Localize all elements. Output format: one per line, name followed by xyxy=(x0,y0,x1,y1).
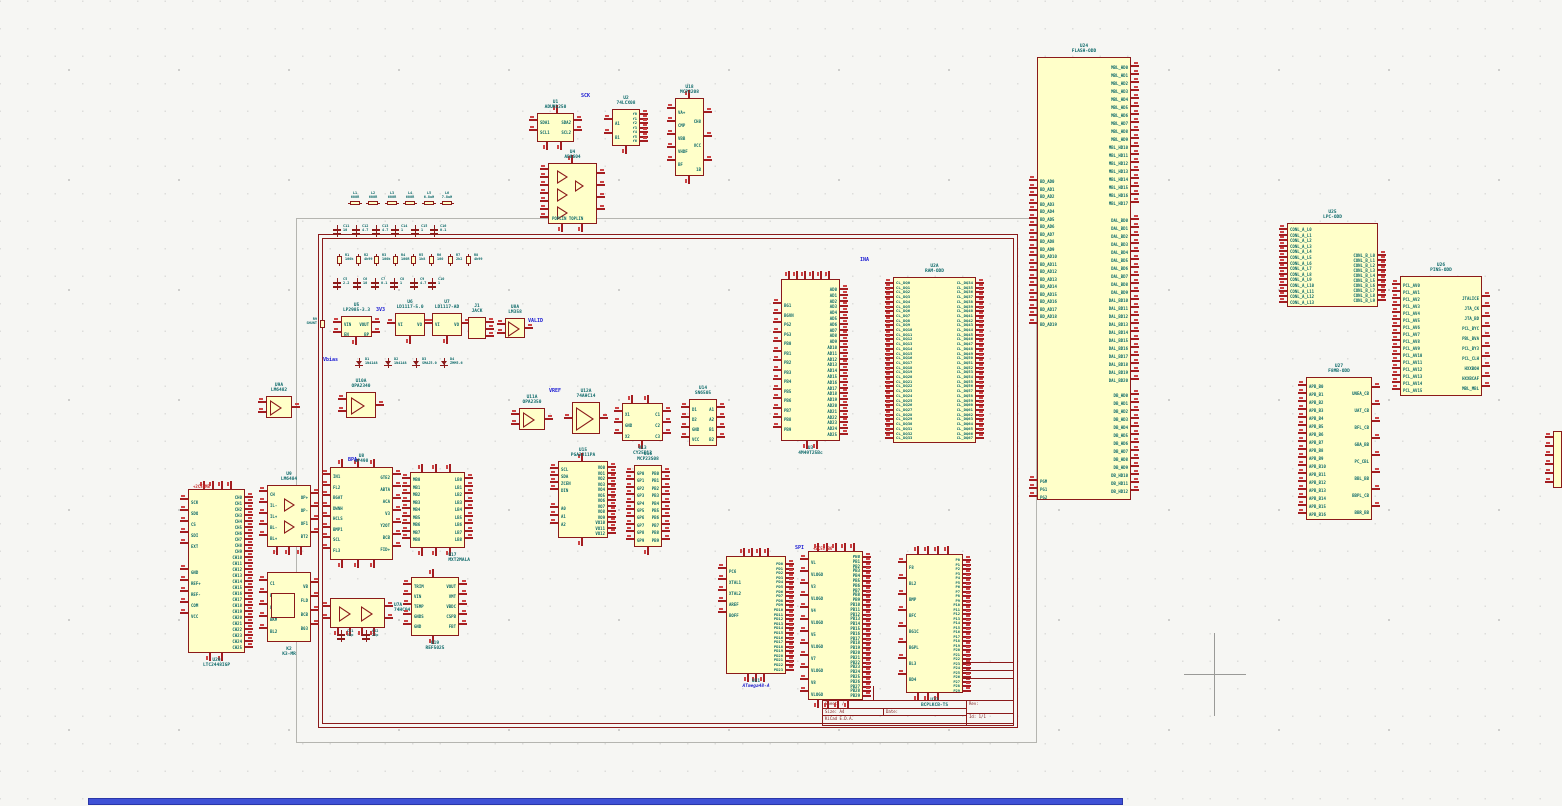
pin xyxy=(402,492,410,494)
pin xyxy=(560,142,562,150)
pin xyxy=(1392,304,1400,306)
discrete-L2[interactable]: L2 600R xyxy=(366,200,380,206)
pin xyxy=(259,512,267,514)
pin xyxy=(663,432,671,434)
discrete-R8[interactable]: R8 4k99 xyxy=(465,254,472,266)
pin xyxy=(1131,489,1139,491)
pin xyxy=(773,359,781,361)
pin xyxy=(681,406,689,408)
discrete-C7[interactable]: C7 0.1 xyxy=(371,278,379,290)
pin xyxy=(372,331,380,333)
component-U17[interactable]: MB0 MB1 MB2 MB3 MB4 MB5 MB6 MB7 MB8LB0 L… xyxy=(410,472,465,548)
pin xyxy=(820,271,822,279)
component-ref: U24FLASH-ODD xyxy=(1072,44,1096,54)
discrete-R6[interactable]: R6 100 xyxy=(428,254,435,266)
pin xyxy=(402,530,410,532)
pin xyxy=(1131,105,1139,107)
discrete-R7[interactable]: R7 2k2 xyxy=(447,254,454,266)
pin xyxy=(245,520,253,522)
pin xyxy=(403,593,411,595)
pin xyxy=(402,500,410,502)
pin xyxy=(1029,224,1037,226)
discrete-C14[interactable]: C14 1 xyxy=(391,225,399,237)
pin xyxy=(1029,232,1037,234)
pin xyxy=(1392,325,1400,327)
pin xyxy=(898,609,906,611)
discrete-C5[interactable]: C5 2.2 xyxy=(333,278,341,290)
pin xyxy=(245,562,253,564)
pin xyxy=(1545,472,1553,474)
discrete-D4[interactable]: D4 ZMM5.6 xyxy=(440,358,448,368)
wire[interactable] xyxy=(873,686,874,701)
component-U8[interactable]: IN1 FL2 BGAT DWNH HCLS BMP1 SCL FL3GTE2 … xyxy=(330,467,393,560)
pin xyxy=(1482,315,1490,317)
pin xyxy=(704,135,712,137)
pin xyxy=(718,589,726,591)
pin xyxy=(459,623,467,625)
discrete-C9[interactable]: C9 4.7 xyxy=(410,278,418,290)
opamp-symbol-fill xyxy=(509,323,518,335)
discrete-label: C14 1 xyxy=(401,225,407,232)
component-U9A[interactable]: U9ALM6482 xyxy=(266,396,292,418)
component-U26[interactable]: PCL_AV0 PCL_AV1 PCL_AV2 PCL_AV3 PCL_AV4 … xyxy=(1400,276,1482,396)
pin xyxy=(1482,375,1490,377)
cap-plate xyxy=(410,282,418,284)
discrete-label: R2 4k99 xyxy=(364,254,372,261)
component-ref: U8ALM358 xyxy=(508,305,522,315)
pin xyxy=(180,590,188,592)
discrete-R4[interactable]: R4 100R xyxy=(392,254,399,266)
component-U10A[interactable]: U10AOPA2340 xyxy=(346,392,376,418)
pin xyxy=(581,224,583,232)
component-value: OPA2350 xyxy=(523,400,542,405)
pin xyxy=(393,545,401,547)
pin xyxy=(564,417,572,419)
pin xyxy=(662,508,670,510)
discrete-C13[interactable]: C13 4.7 xyxy=(372,225,380,237)
net-label-INA[interactable]: INA xyxy=(860,258,869,263)
cap-plate xyxy=(371,282,379,284)
pin xyxy=(717,436,725,438)
component-K2[interactable]: C1 B1 LML BKM BL2VB FLD BCB B03K2K3-MR xyxy=(267,572,311,642)
discrete-label: C21 22p xyxy=(347,630,353,637)
pin xyxy=(333,331,341,333)
cap-plate xyxy=(352,229,360,231)
pin-labels: VO0 VO1 VO2 VO3 VO4 VO5 VO6 VO7 VO8 VO9 … xyxy=(595,465,605,537)
pin xyxy=(1392,346,1400,348)
discrete-R3[interactable]: R3 100k xyxy=(373,254,380,266)
pin-labels: AD0 AD1 AD2 AD3 AD4 AD5 AD6 AD7 AD8 AD9 … xyxy=(827,287,837,438)
pin xyxy=(1131,121,1139,123)
discrete-label: C13 4.7 xyxy=(382,225,388,232)
pin xyxy=(311,623,319,625)
pin xyxy=(840,358,848,360)
discrete-L3[interactable]: L3 600R xyxy=(385,200,399,206)
pin xyxy=(704,111,712,113)
pin xyxy=(393,521,401,523)
discrete-D3[interactable]: D3 SMAJ5.0 xyxy=(412,358,420,368)
pin xyxy=(1131,185,1139,187)
pin xyxy=(1131,322,1139,324)
pin xyxy=(1131,433,1139,435)
pin xyxy=(1029,314,1037,316)
horizontal-scrollbar[interactable] xyxy=(88,798,1123,805)
pin xyxy=(497,323,505,325)
component-U14[interactable]: D1 D2 GND VCCA1 A2 B1 B2U14SN6505 xyxy=(689,399,717,446)
pin xyxy=(1131,346,1139,348)
component-U2A[interactable]: CL_DQ0 CL_DQ1 CL_DQ2 CL_DQ3 CL_DQ4 CL_DQ… xyxy=(893,277,976,443)
pin xyxy=(385,617,393,619)
pin-labels: MB0 MB1 MB2 MB3 MB4 MB5 MB6 MB7 MB8 xyxy=(413,476,420,544)
pin-labels: DAL_BD0 DAL_BD1 DAL_BD2 DAL_BD3 DAL_BD4 … xyxy=(1109,217,1128,385)
discrete-R1[interactable]: R1 100k xyxy=(336,254,343,266)
pin xyxy=(667,133,675,135)
pin xyxy=(840,352,848,354)
pin-labels: VA+ CMP VBB VHDF BF xyxy=(678,106,688,171)
discrete-C11[interactable]: C11 10 xyxy=(333,225,341,237)
pin xyxy=(667,159,675,161)
pin xyxy=(796,271,798,279)
pin xyxy=(550,481,558,483)
component-ref: U1ADUM1250 xyxy=(545,100,567,110)
discrete-L4[interactable]: L4 600R xyxy=(403,200,417,206)
component-U15[interactable]: SCL SDA ZCEN DINA0 A1 A2VO0 VO1 VO2 VO3 … xyxy=(558,461,608,538)
pin xyxy=(1131,401,1139,403)
component-U18[interactable]: VA+ CMP VBB VHDF BFCH8 VCC 1BU18MCP3208 xyxy=(675,98,704,176)
lead xyxy=(434,225,435,237)
pin xyxy=(1298,384,1306,386)
component-U16[interactable]: GP0 GP1 GP2 GP3 GP4 GP5 GP6 GP7 GP8 GP9P… xyxy=(634,465,662,547)
pin xyxy=(259,615,267,617)
pin xyxy=(837,700,839,708)
discrete-D2[interactable]: D2 1N4148 xyxy=(384,358,392,368)
discrete-C10[interactable]: C10 1 xyxy=(428,278,436,290)
pin xyxy=(402,515,410,517)
component-U11A[interactable]: U11AOPA2350 xyxy=(519,408,545,430)
pin xyxy=(840,363,848,365)
discrete-R5[interactable]: R5 1k8 xyxy=(410,254,417,266)
diode-bar xyxy=(412,365,420,366)
pin-labels: X1 GND X2 xyxy=(625,409,632,442)
discrete-C8[interactable]: C8 1 xyxy=(390,278,398,290)
discrete-label: C16 0.1 xyxy=(440,225,446,232)
pin xyxy=(1131,449,1139,451)
component-part[interactable]: VL VLOGO V3 VLOGO V4 VLOGO V5 VLOGO V7 V… xyxy=(808,551,863,700)
cap-plate xyxy=(353,282,361,284)
component-ref: U21ATmega48-A xyxy=(742,679,769,689)
pin xyxy=(581,538,583,546)
schematic-canvas[interactable]: Sheet: / Size: A4 Date: KiCad E.D.A. Rev… xyxy=(0,0,1562,806)
component-U23[interactable]: F8 BL2 BMP BFC BG1C BGPL BL3 BD4P0 P1 P2… xyxy=(906,554,963,693)
opamp-symbol-fill xyxy=(285,522,293,532)
discrete-C6[interactable]: C6 10 xyxy=(353,278,361,290)
component-U21[interactable]: PC6 XTAL1 XTAL2 AREF BOFFPD0 PD1 PD2 PD3… xyxy=(726,556,786,674)
pin xyxy=(773,416,781,418)
opamp-symbol-fill xyxy=(352,399,363,413)
pin xyxy=(1482,355,1490,357)
pin xyxy=(311,581,319,583)
component-part[interactable] xyxy=(1553,431,1562,488)
wire[interactable] xyxy=(963,662,1013,663)
lead xyxy=(395,225,396,237)
discrete-D1[interactable]: D1 1N4148 xyxy=(355,358,363,368)
pin-labels: VI xyxy=(398,321,403,329)
pin xyxy=(180,520,188,522)
pin xyxy=(840,392,848,394)
pin xyxy=(1131,145,1139,147)
component-U8A[interactable]: U8ALM358 xyxy=(505,318,525,338)
pin xyxy=(221,481,223,489)
pin-labels: CONL_B_L0 CONL_B_L1 CONL_B_L2 CONL_B_L3 … xyxy=(1353,253,1375,303)
discrete-label: C8 1 xyxy=(400,278,404,285)
pin xyxy=(1029,307,1037,309)
component-value: F8MB-ODD xyxy=(1328,369,1350,374)
pin xyxy=(847,700,849,708)
pin xyxy=(1029,179,1037,181)
pin xyxy=(465,485,473,487)
cap-plate xyxy=(362,638,370,640)
component-U12A[interactable]: U12A74AHC14 xyxy=(572,402,600,434)
pin-labels: PC6 XTAL1 XTAL2 AREF BOFF xyxy=(729,566,741,621)
lead xyxy=(366,630,367,642)
discrete-label: D4 ZMM5.6 xyxy=(450,358,463,365)
pin xyxy=(1392,353,1400,355)
discrete-R2[interactable]: R2 4k99 xyxy=(355,254,362,266)
pin-labels: D1 D2 GND VCC xyxy=(692,405,699,445)
discrete-L6[interactable]: L6 7.8uH xyxy=(440,200,454,206)
component-U6[interactable]: VIVOU6LD1117-5.0 xyxy=(395,313,425,336)
wire[interactable] xyxy=(873,700,1013,701)
discrete-L5[interactable]: L5 6.8uH xyxy=(422,200,436,206)
cap-plate xyxy=(391,233,399,235)
pin xyxy=(245,526,253,528)
component-U7A[interactable]: U7A74HC04 xyxy=(330,598,385,628)
component-U24[interactable]: BD_AD0 BD_AD1 BD_AD2 BD_AD3 BD_AD4 BD_AD… xyxy=(1037,57,1131,500)
pin-labels: GP0 GP1 GP2 GP3 GP4 GP5 GP6 GP7 GP8 GP9 xyxy=(637,470,644,544)
component-U19[interactable]: TRIM VIN TEMP GNDS GNDVOUT VMT VBDC CSPB… xyxy=(411,577,459,636)
component-U20[interactable]: SCK SDO CS SDI EXTGND REF+ REF- COM VCCC… xyxy=(188,489,245,653)
pin xyxy=(1298,480,1306,482)
pin xyxy=(1298,464,1306,466)
component-ref: U15PGA2311PA xyxy=(571,448,595,458)
pin-labels: LB0 LB1 LB2 LB3 LB4 LB5 LB6 LB7 LB8 xyxy=(455,476,462,544)
pin xyxy=(372,321,380,323)
inductor-body xyxy=(387,201,397,205)
pin xyxy=(626,530,634,532)
discrete-C22[interactable]: C22 22p xyxy=(362,630,370,642)
net-label-SPI[interactable]: SPI xyxy=(795,546,804,551)
resistor-body xyxy=(356,256,361,264)
discrete-C21[interactable]: C21 22p xyxy=(337,630,345,642)
cap-plate xyxy=(337,638,345,640)
pin-labels: VIN EN xyxy=(344,320,351,340)
pin xyxy=(717,426,725,428)
component-ref: U17MXT2MALA xyxy=(448,553,470,563)
cap-plate xyxy=(428,286,436,288)
component-value: LD1117-5.0 xyxy=(396,305,423,310)
pin xyxy=(311,595,319,597)
pin xyxy=(357,560,359,568)
sub-symbol xyxy=(271,593,295,618)
pin xyxy=(402,507,410,509)
pin xyxy=(550,522,558,524)
component-ref: U4AD8604 xyxy=(564,150,580,160)
pin xyxy=(402,485,410,487)
net-label-SCK[interactable]: SCK xyxy=(581,94,590,99)
discrete-label: C12 4.7 xyxy=(362,225,368,232)
discrete-C15[interactable]: C15 1 xyxy=(411,225,419,237)
component-value: 74LCX08 xyxy=(617,101,636,106)
component-U25[interactable]: CONL_A_L0 CONL_A_L1 CONL_A_L2 CONL_A_L3 … xyxy=(1287,223,1378,307)
pin-labels: TRIM VIN TEMP GNDS GND xyxy=(414,582,424,632)
pin xyxy=(459,583,467,585)
component-U4[interactable]: POPLIN TOPLINU4AD8604 xyxy=(548,163,597,224)
pin-labels: VB FLD BCB B03 xyxy=(301,580,308,636)
pin xyxy=(245,604,253,606)
pin xyxy=(1131,226,1139,228)
pin xyxy=(300,547,302,555)
component-U7[interactable]: VIVOU7LD1117-AD xyxy=(432,313,462,336)
pin xyxy=(662,501,670,503)
pin xyxy=(259,603,267,605)
pin xyxy=(338,410,346,412)
discrete-label: R4 100R xyxy=(401,254,409,261)
pin xyxy=(1131,242,1139,244)
pin xyxy=(373,560,375,568)
pin xyxy=(245,598,253,600)
pin xyxy=(1372,403,1380,405)
pin-labels: CONL_A_L0 CONL_A_L1 CONL_A_L2 CONL_A_L3 … xyxy=(1290,227,1314,305)
pin xyxy=(341,560,343,568)
pin xyxy=(631,395,633,403)
pin-labels: C1 C2 C3 xyxy=(655,409,660,442)
pin xyxy=(717,416,725,418)
pin xyxy=(597,184,605,186)
component-value: LPC-ODD xyxy=(1323,215,1342,220)
pin xyxy=(341,459,343,467)
pin xyxy=(1392,360,1400,362)
pin xyxy=(1372,471,1380,473)
pin xyxy=(1131,441,1139,443)
pin xyxy=(835,543,837,551)
pin xyxy=(1029,479,1037,481)
pin xyxy=(322,494,330,496)
component-U1[interactable]: SDA1 SCL1SDA2 SCL2U1ADUM1250 xyxy=(537,113,574,142)
pin xyxy=(1378,299,1386,301)
cap-plate xyxy=(411,233,419,235)
pin xyxy=(1372,437,1380,439)
pin xyxy=(1131,314,1139,316)
pin xyxy=(540,184,548,186)
pin xyxy=(1298,416,1306,418)
component-value: LP2985-3.3 xyxy=(343,308,370,313)
pin xyxy=(338,398,346,400)
pin-labels: GTE2 ABTA ACA V3 Y2OT BCB FID+ xyxy=(380,472,390,556)
pin xyxy=(1372,386,1380,388)
net-label-VREF[interactable]: VREF xyxy=(549,389,561,394)
discrete-L1[interactable]: L1 600R xyxy=(348,200,362,206)
pin xyxy=(403,583,411,585)
pin xyxy=(1131,465,1139,467)
cap-plate xyxy=(333,229,341,231)
title-block-rev: Rev: xyxy=(966,701,1013,714)
pin xyxy=(245,514,253,516)
wire[interactable] xyxy=(963,670,1013,671)
pin xyxy=(1298,504,1306,506)
pin xyxy=(311,505,319,507)
pin-labels: PGM PG1 PG2 xyxy=(1040,478,1047,502)
pin xyxy=(1131,266,1139,268)
component-value: SN6505 xyxy=(695,391,711,396)
pin xyxy=(1131,425,1139,427)
net-label-VALID[interactable]: VALID xyxy=(528,319,543,324)
pin xyxy=(465,537,473,539)
component-ref: J1JACK xyxy=(472,304,483,314)
pin xyxy=(245,550,253,552)
discrete-label: D1 1N4148 xyxy=(365,358,378,365)
component-J1[interactable]: J1JACK xyxy=(468,317,486,339)
pin xyxy=(435,548,437,556)
pin xyxy=(1131,73,1139,75)
pin xyxy=(1131,393,1139,395)
net-label-3V3[interactable]: 3V3 xyxy=(376,308,385,313)
pin-labels: CH8 VCC 1B xyxy=(694,110,701,182)
net-label-Vbias[interactable]: Vbias xyxy=(323,358,338,363)
pin xyxy=(773,331,781,333)
component-U27[interactable]: APB_B0 APB_B1 APB_B2 APB_B3 APB_B4 APB_B… xyxy=(1306,377,1372,520)
pin xyxy=(245,568,253,570)
pin xyxy=(540,208,548,210)
pin xyxy=(1392,374,1400,376)
wire[interactable] xyxy=(963,678,1013,679)
discrete-C12[interactable]: C12 4.7 xyxy=(352,225,360,237)
pin xyxy=(230,481,232,489)
pin xyxy=(1131,113,1139,115)
discrete-label: C22 22p xyxy=(372,630,378,637)
component-value: ATmega48-A xyxy=(742,684,769,689)
discrete-C16[interactable]: C16 0.1 xyxy=(430,225,438,237)
pin xyxy=(1298,448,1306,450)
pin xyxy=(1131,89,1139,91)
pin xyxy=(322,547,330,549)
net-label-BPA[interactable]: BPA xyxy=(348,458,357,463)
component-U2[interactable]: A1 B1Y0 Y1 Y2 Y3 Y4 Y5 Y6U274LCX08 xyxy=(612,109,640,146)
pin xyxy=(863,695,871,697)
component-U9[interactable]: CH IL- IL+ BL- BL+OP+ OP- OF1 BT2U9LM648… xyxy=(267,485,311,547)
pin xyxy=(625,146,627,154)
discrete-R9[interactable]: R9 SHUNT xyxy=(319,318,326,330)
pin xyxy=(259,501,267,503)
component-U3[interactable]: BG1 BGVN PG2 PG3 PB0 PB1 PB2 PB3 PB4 PB5… xyxy=(781,279,840,441)
cap-plate xyxy=(430,229,438,231)
pin xyxy=(245,610,253,612)
pin xyxy=(180,531,188,533)
power-label: +2C5V B6 xyxy=(813,547,832,551)
pin xyxy=(718,611,726,613)
pin xyxy=(937,546,939,554)
component-U13[interactable]: X1 GND X2C1 C2 C3U13CY25B12 xyxy=(622,403,663,441)
pin xyxy=(662,493,670,495)
component-U5[interactable]: VIN ENVOUT BPU5LP2985-3.3 xyxy=(341,316,372,337)
pin xyxy=(459,593,467,595)
discrete-label: C10 1 xyxy=(438,278,444,285)
component-ref: U16MCP23S08 xyxy=(637,452,659,462)
pin xyxy=(245,580,253,582)
pin xyxy=(561,224,563,232)
cap-plate xyxy=(372,233,380,235)
pin xyxy=(1029,239,1037,241)
pin xyxy=(292,406,300,408)
